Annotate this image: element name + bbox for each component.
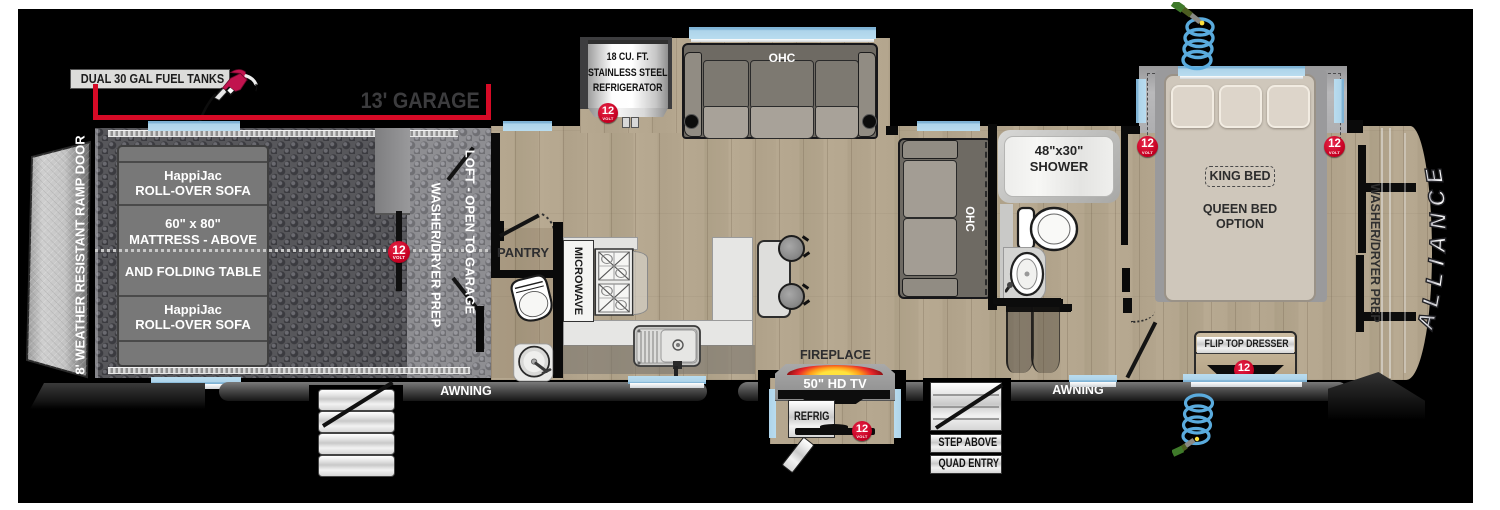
svg-text:ALLIANCE: ALLIANCE <box>1411 159 1451 333</box>
